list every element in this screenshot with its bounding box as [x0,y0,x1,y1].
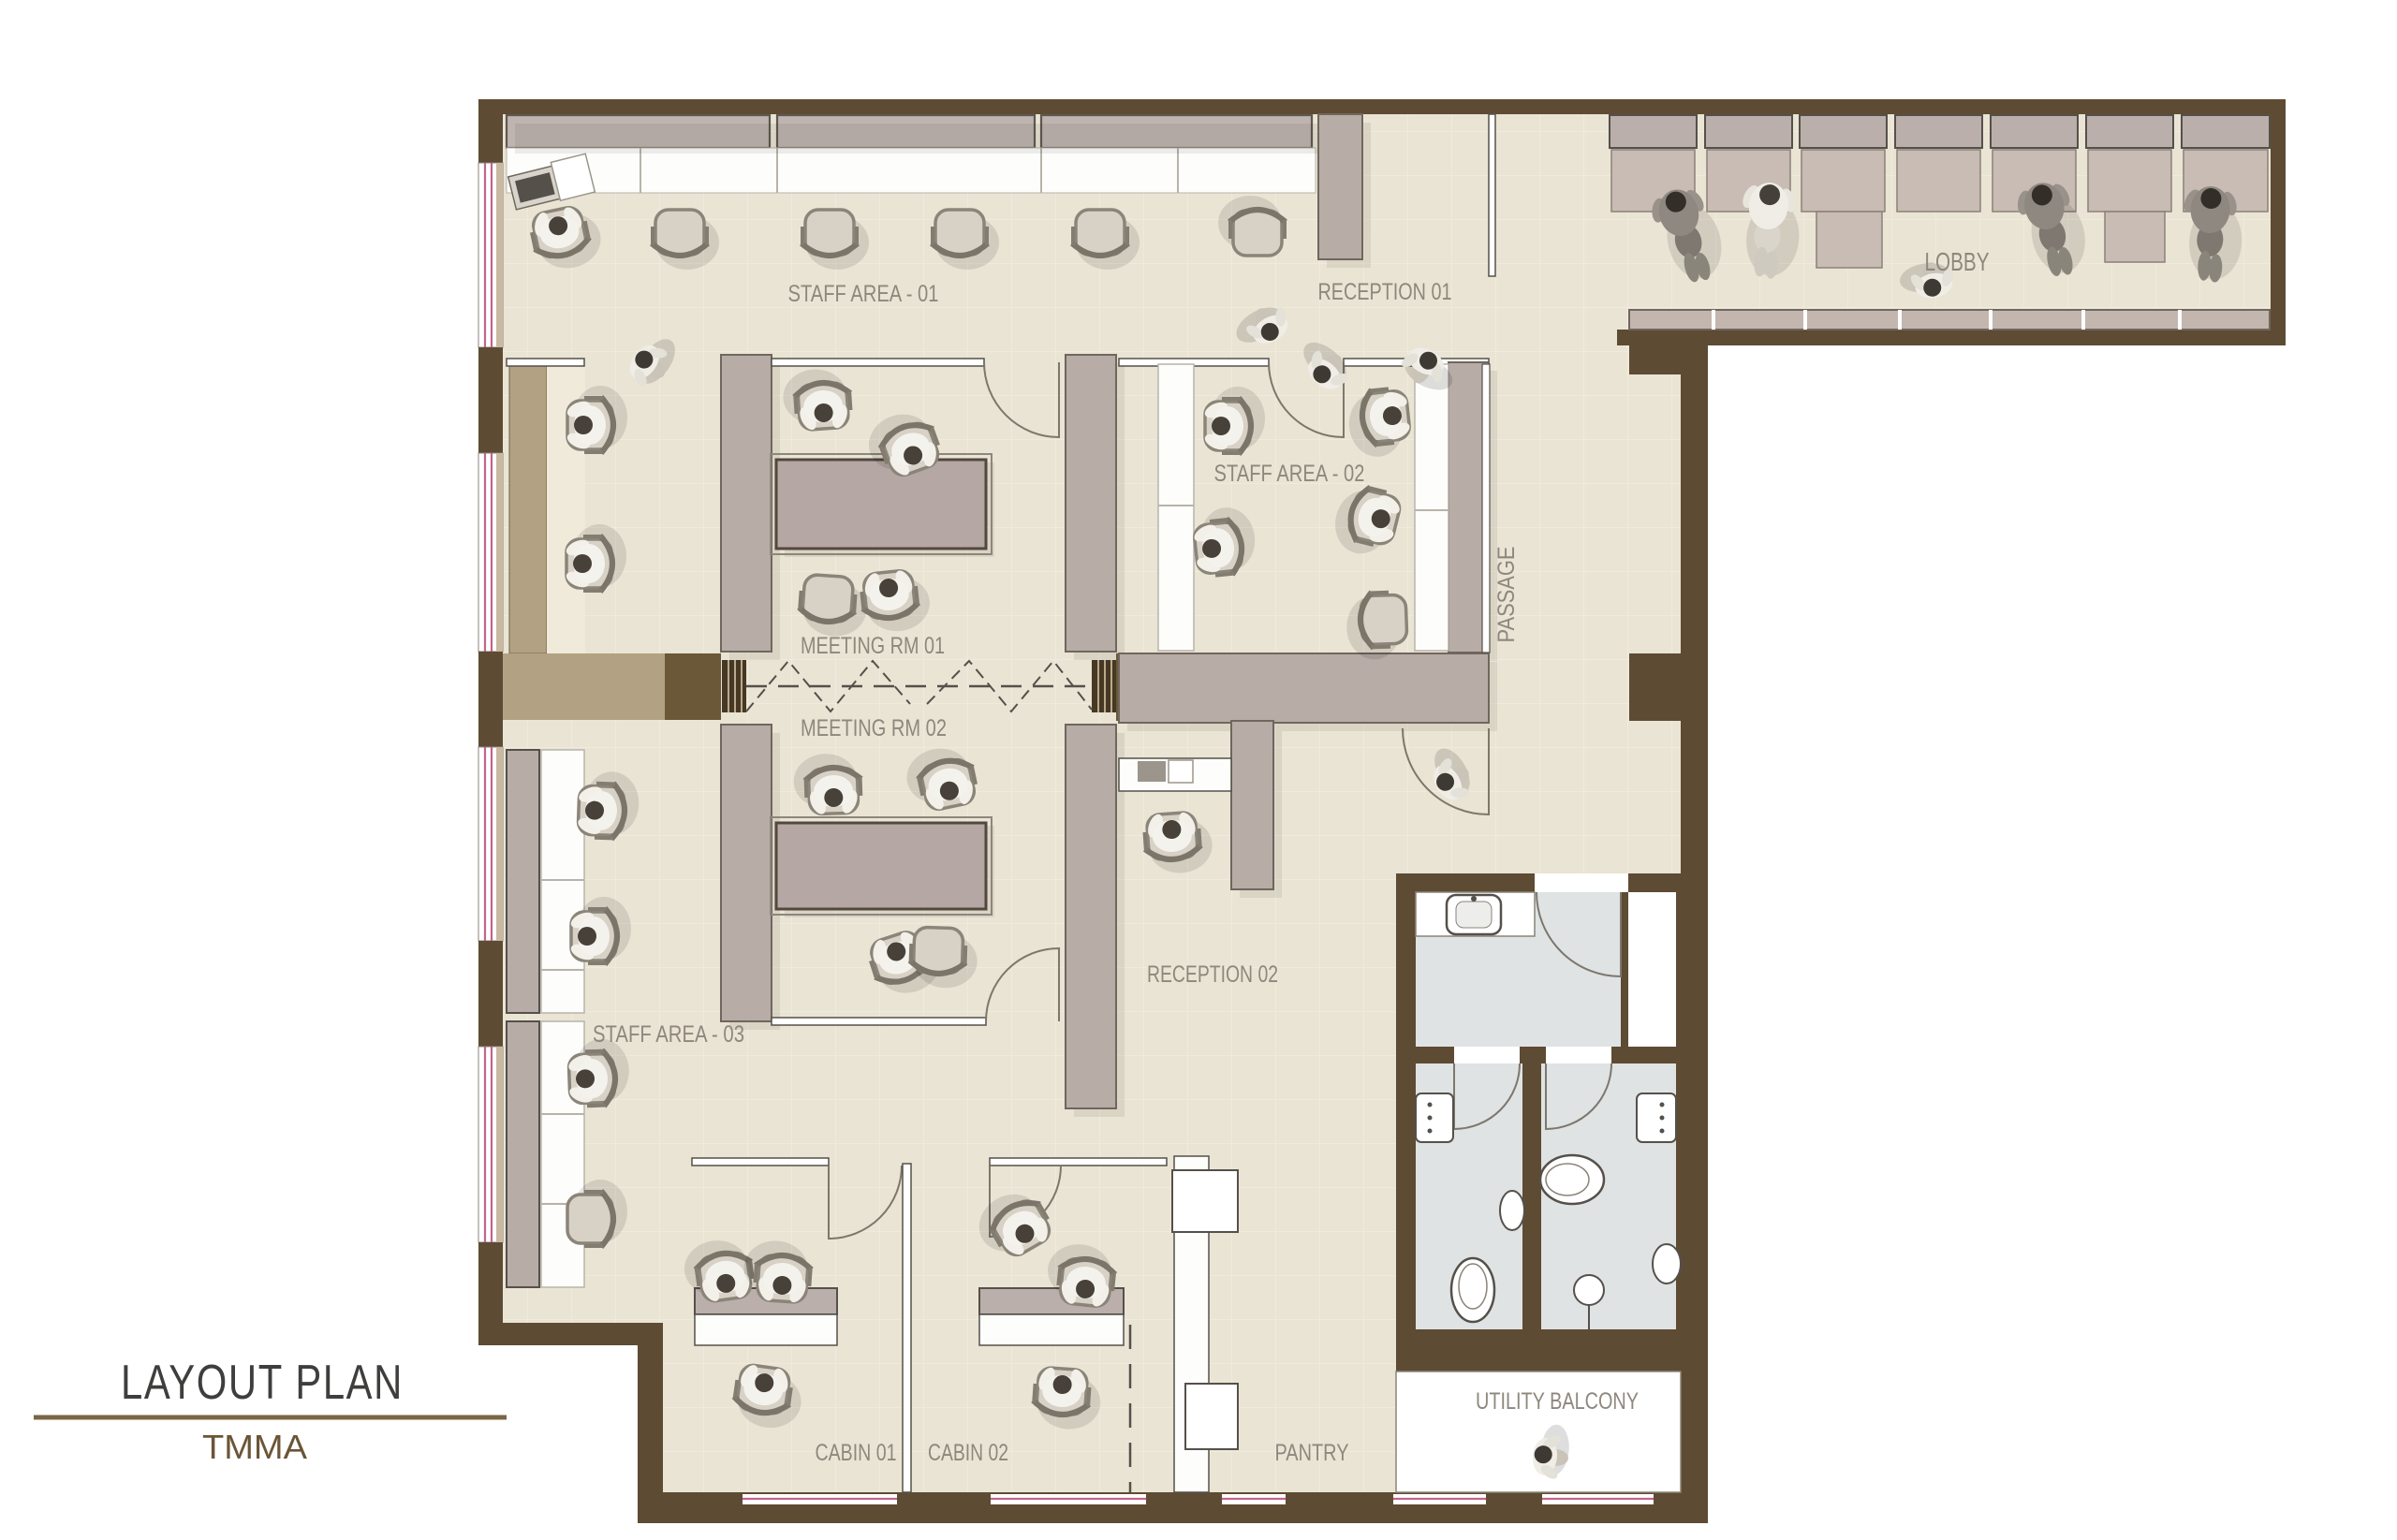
svg-text:LOBBY: LOBBY [1925,247,1990,276]
svg-text:CABIN 02: CABIN 02 [928,1440,1008,1466]
svg-text:CABIN 01: CABIN 01 [816,1440,897,1466]
svg-text:MEETING RM 02: MEETING RM 02 [801,715,947,741]
svg-text:STAFF AREA - 01: STAFF AREA - 01 [788,281,939,307]
svg-text:RECEPTION 02: RECEPTION 02 [1147,961,1278,988]
svg-text:RECEPTION 01: RECEPTION 01 [1318,279,1452,305]
svg-text:UTILITY BALCONY: UTILITY BALCONY [1476,1388,1639,1415]
svg-text:TMMA: TMMA [202,1428,307,1466]
svg-text:STAFF AREA - 02: STAFF AREA - 02 [1214,461,1365,487]
svg-text:STAFF AREA - 03: STAFF AREA - 03 [593,1021,744,1048]
svg-text:MEETING RM 01: MEETING RM 01 [801,633,945,659]
svg-text:LAYOUT PLAN: LAYOUT PLAN [121,1356,404,1410]
svg-text:PASSAGE: PASSAGE [1493,547,1520,643]
svg-text:PANTRY: PANTRY [1275,1440,1349,1466]
